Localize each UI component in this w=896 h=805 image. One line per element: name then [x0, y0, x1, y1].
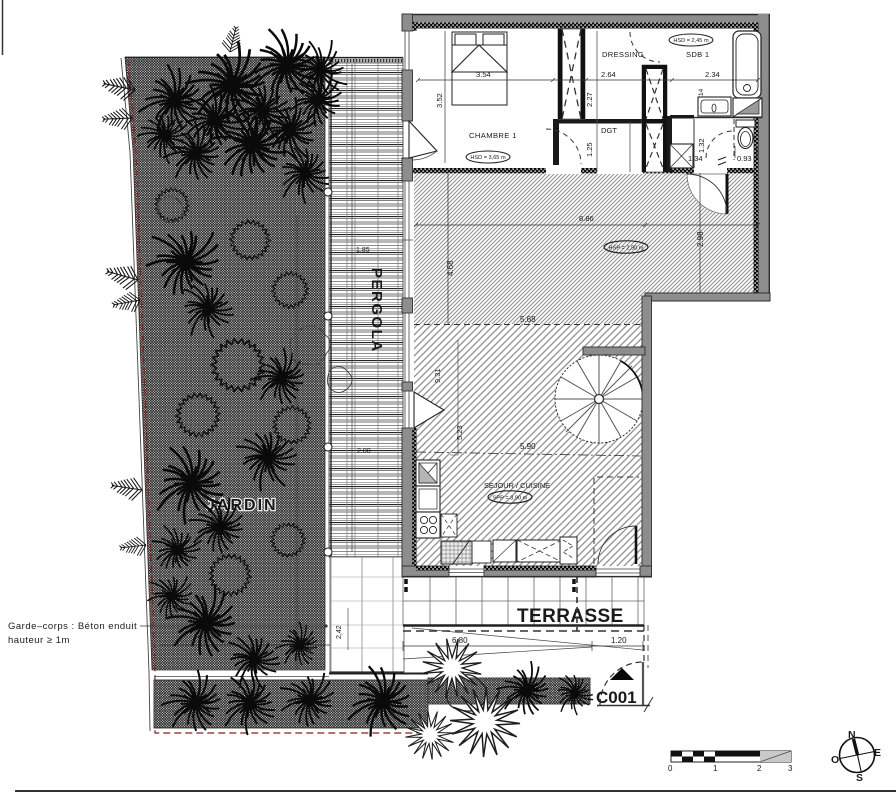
svg-text:6,80: 6,80 [452, 636, 468, 645]
svg-text:1.85: 1.85 [356, 247, 370, 254]
svg-text:9.31: 9.31 [433, 368, 442, 383]
svg-text:2.98: 2.98 [696, 231, 705, 247]
svg-text:1.34: 1.34 [688, 154, 703, 163]
svg-text:DGT: DGT [601, 126, 617, 135]
svg-text:0: 0 [668, 764, 673, 773]
svg-text:1.32: 1.32 [697, 138, 706, 153]
svg-text:Garde–corps : Béton enduit: Garde–corps : Béton enduit [8, 621, 137, 632]
svg-text:4.68: 4.68 [446, 260, 455, 276]
svg-text:O: O [831, 754, 839, 766]
svg-text:5.90: 5.90 [520, 442, 536, 451]
svg-text:SPP = 3,90 m: SPP = 3,90 m [493, 495, 528, 501]
svg-text:2,42: 2,42 [336, 625, 343, 639]
svg-text:hauteur ≥ 1m: hauteur ≥ 1m [8, 635, 70, 646]
svg-text:1.20: 1.20 [611, 636, 627, 645]
svg-text:SEJOUR / CUISINE: SEJOUR / CUISINE [484, 481, 550, 490]
svg-text:E: E [874, 747, 881, 759]
svg-text:2.00: 2.00 [357, 448, 371, 455]
svg-text:5.23: 5.23 [455, 425, 464, 440]
svg-text:C001: C001 [596, 688, 637, 707]
svg-text:HSP = 2,90 m: HSP = 2,90 m [609, 245, 644, 251]
svg-text:2: 2 [757, 764, 762, 773]
svg-text:0.93: 0.93 [737, 154, 752, 163]
svg-text:HSD = 2,45 m: HSD = 2,45 m [673, 38, 709, 44]
svg-text:DRESSING: DRESSING [602, 50, 644, 59]
svg-text:N: N [848, 729, 856, 741]
svg-text:CHAMBRE 1: CHAMBRE 1 [469, 131, 517, 140]
svg-text:2.27: 2.27 [585, 92, 594, 107]
svg-text:1.25: 1.25 [585, 142, 594, 157]
svg-text:2.64: 2.64 [601, 70, 616, 79]
svg-text:HSD = 3,65 m: HSD = 3,65 m [470, 155, 506, 161]
svg-text:TERRASSE: TERRASSE [517, 606, 624, 627]
svg-text:14: 14 [698, 88, 705, 96]
svg-text:5.68: 5.68 [520, 315, 536, 324]
svg-text:3.52: 3.52 [435, 93, 444, 108]
svg-text:SDB 1: SDB 1 [686, 50, 709, 59]
svg-text:PERGOLA: PERGOLA [368, 268, 385, 353]
svg-text:8.86: 8.86 [579, 214, 594, 223]
svg-text:2.34: 2.34 [705, 70, 720, 79]
svg-text:S: S [856, 772, 863, 784]
svg-text:1: 1 [713, 764, 718, 773]
svg-text:3: 3 [788, 764, 793, 773]
svg-text:3.54: 3.54 [476, 70, 491, 79]
